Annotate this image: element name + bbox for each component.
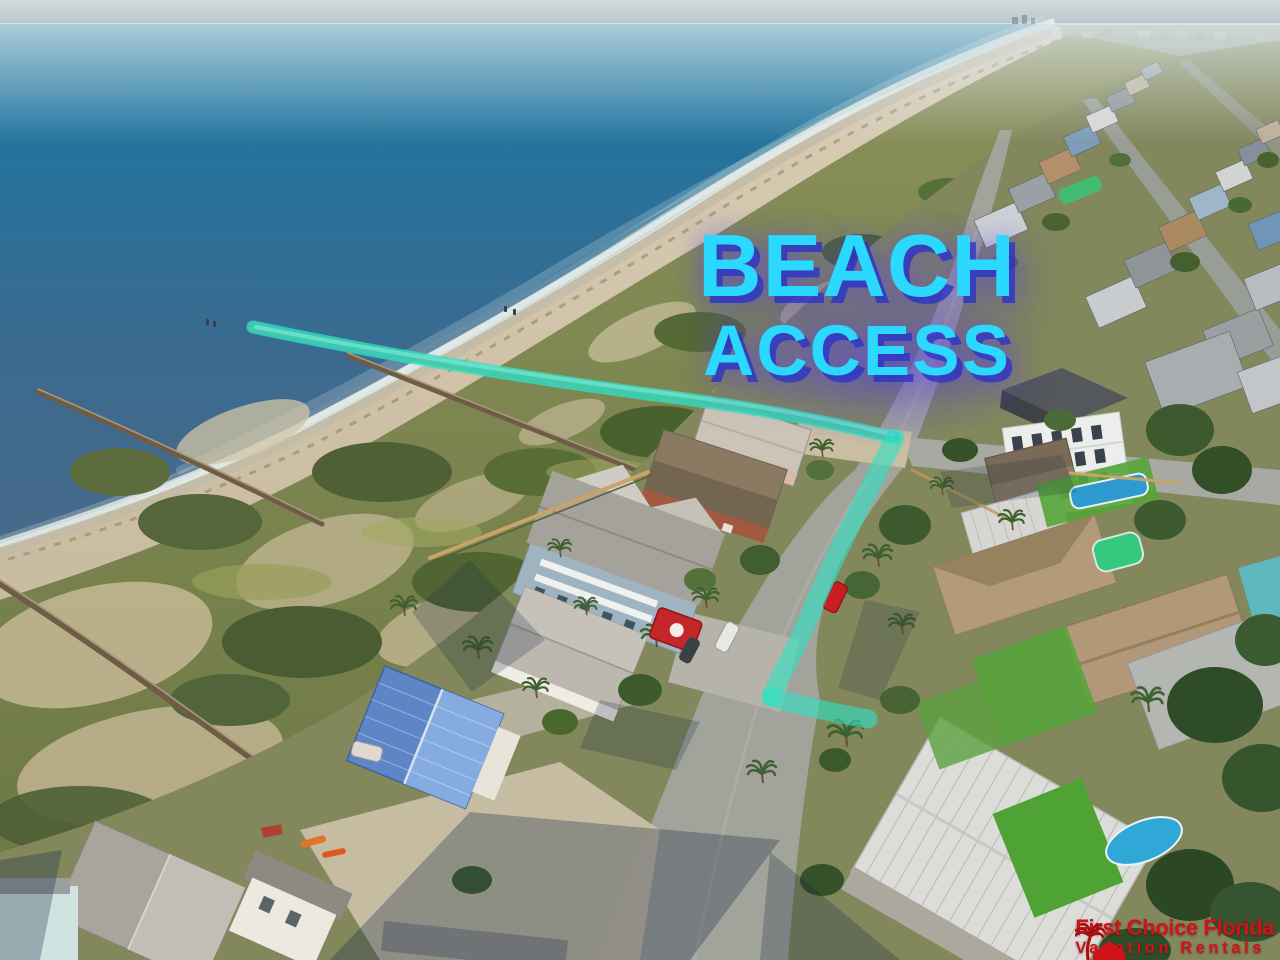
- aerial-photo: BEACH ACCESS First Choice Florida Vacati…: [0, 0, 1280, 960]
- sky: [0, 0, 1280, 25]
- aerial-scene: [0, 0, 1280, 960]
- horizon-haze: [0, 24, 1280, 144]
